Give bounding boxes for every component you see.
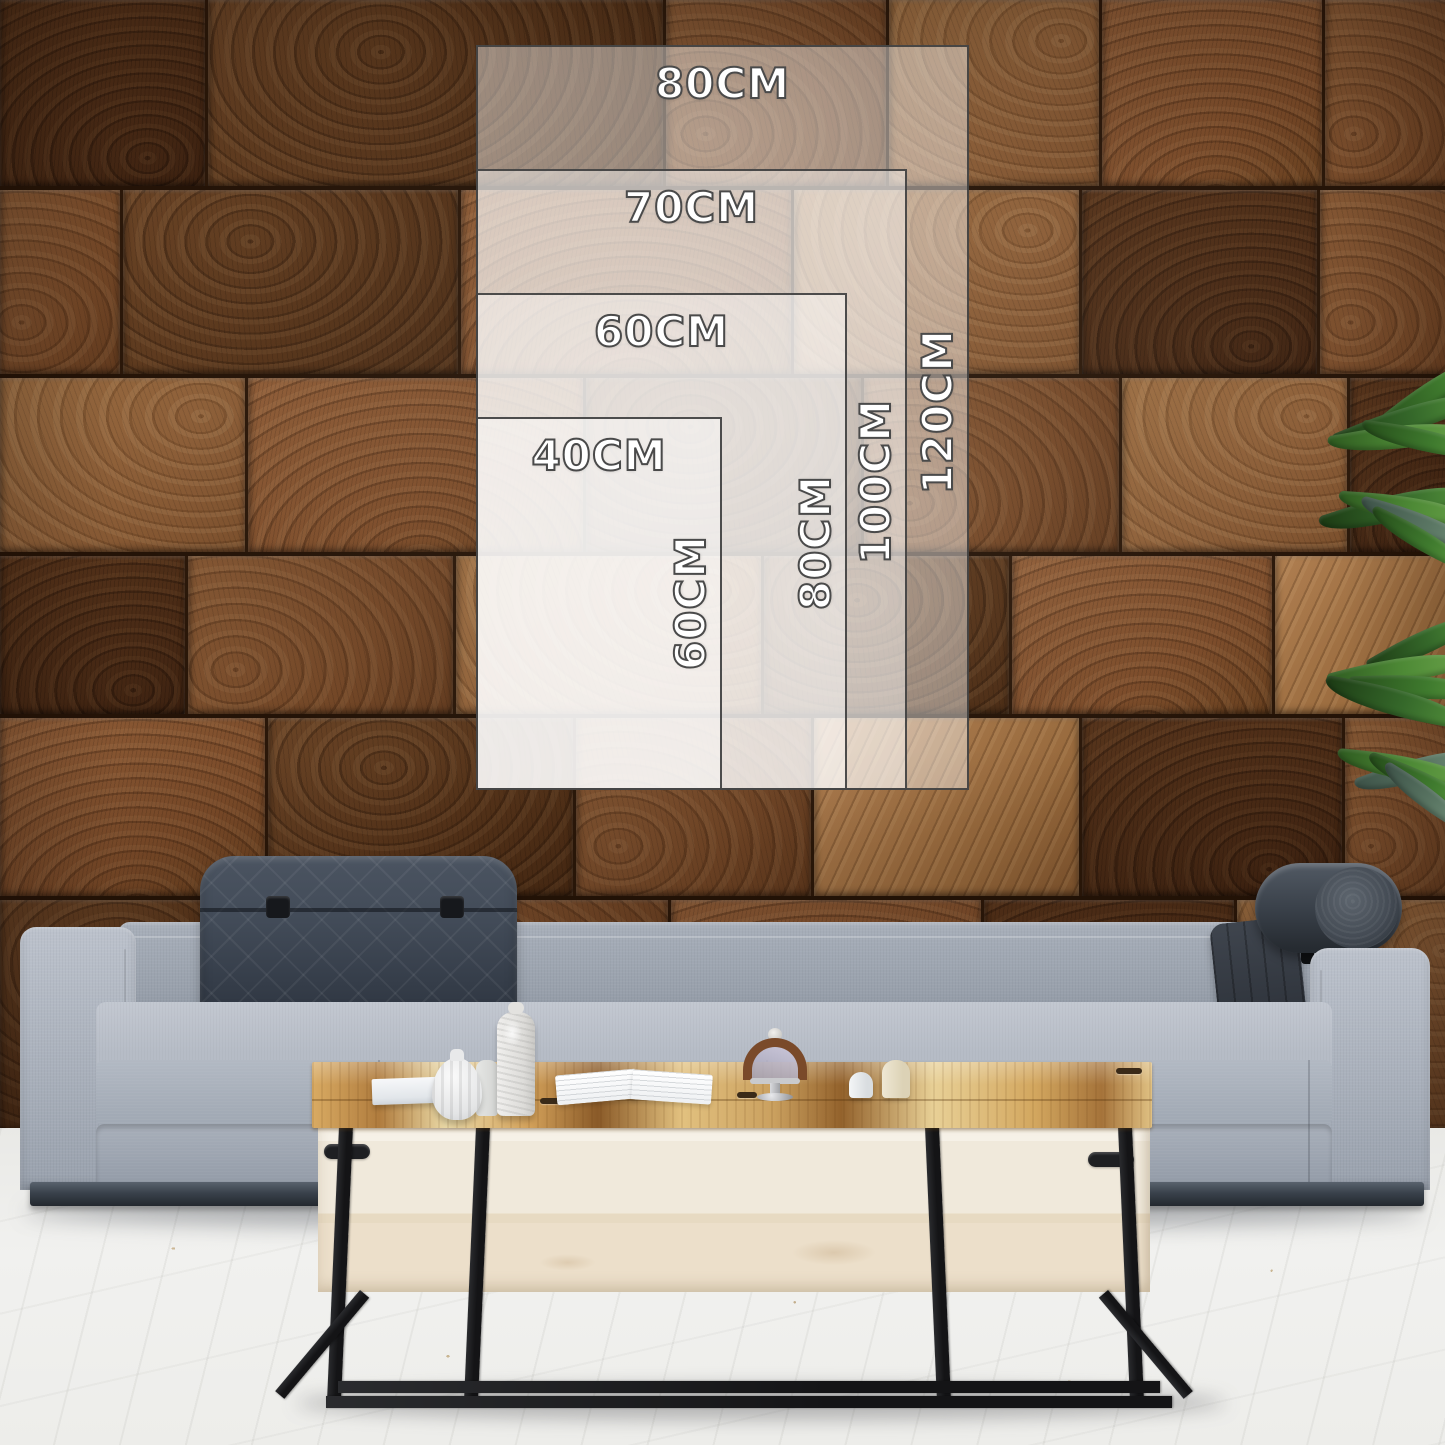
flat-book — [372, 1077, 439, 1105]
wood-block — [0, 0, 205, 186]
seat-seam — [1308, 1060, 1310, 1126]
wood-block — [1102, 0, 1322, 186]
sofa-bolster-cushion — [1255, 863, 1402, 953]
height-label-120cm: 120CM — [913, 329, 962, 494]
pawn-ornament — [849, 1072, 873, 1098]
table-top-slot — [1116, 1068, 1142, 1074]
headrest-clip — [440, 896, 464, 918]
table-cross-bar — [326, 1396, 1172, 1408]
open-book — [556, 1066, 712, 1106]
wood-block — [1325, 0, 1445, 186]
seat-seam — [1308, 1124, 1310, 1190]
book-page — [631, 1069, 713, 1105]
gourd-vase — [432, 1058, 482, 1120]
ornament-arch — [743, 1038, 807, 1080]
table-front-face — [318, 1128, 1150, 1292]
sofa-seat-top — [96, 1002, 1332, 1066]
candle — [882, 1060, 910, 1098]
size-rect-40x60: 40CM 60CM — [476, 417, 722, 790]
wood-block — [0, 556, 185, 714]
wood-block — [123, 190, 458, 374]
wood-block — [1012, 556, 1272, 714]
width-label-60cm: 60CM — [478, 307, 845, 356]
wood-block — [1320, 190, 1445, 374]
wood-block — [1122, 378, 1347, 552]
height-label-100cm: 100CM — [851, 399, 900, 564]
book-page — [555, 1069, 637, 1106]
width-label-80cm: 80CM — [478, 59, 967, 108]
table-cross-bar — [338, 1381, 1160, 1393]
size-guide-mockup-scene: 80CM 120CM 70CM 100CM 60CM 80CM 40CM 60C… — [0, 0, 1445, 1445]
bolster-end-cap — [1315, 867, 1399, 949]
width-label-70cm: 70CM — [478, 183, 905, 232]
wood-block — [1082, 190, 1317, 374]
ornament-foot — [757, 1093, 793, 1101]
headrest-clip — [266, 896, 290, 918]
tall-vase — [497, 1012, 535, 1116]
wood-block — [188, 556, 453, 714]
height-label-60cm: 60CM — [666, 535, 715, 670]
width-label-40cm: 40CM — [478, 431, 720, 480]
height-label-80cm: 80CM — [791, 475, 840, 610]
wood-block — [0, 378, 245, 552]
wood-block — [0, 190, 120, 374]
sofa-headrest-cushion — [200, 856, 517, 1020]
arch-ornament — [742, 1028, 808, 1100]
